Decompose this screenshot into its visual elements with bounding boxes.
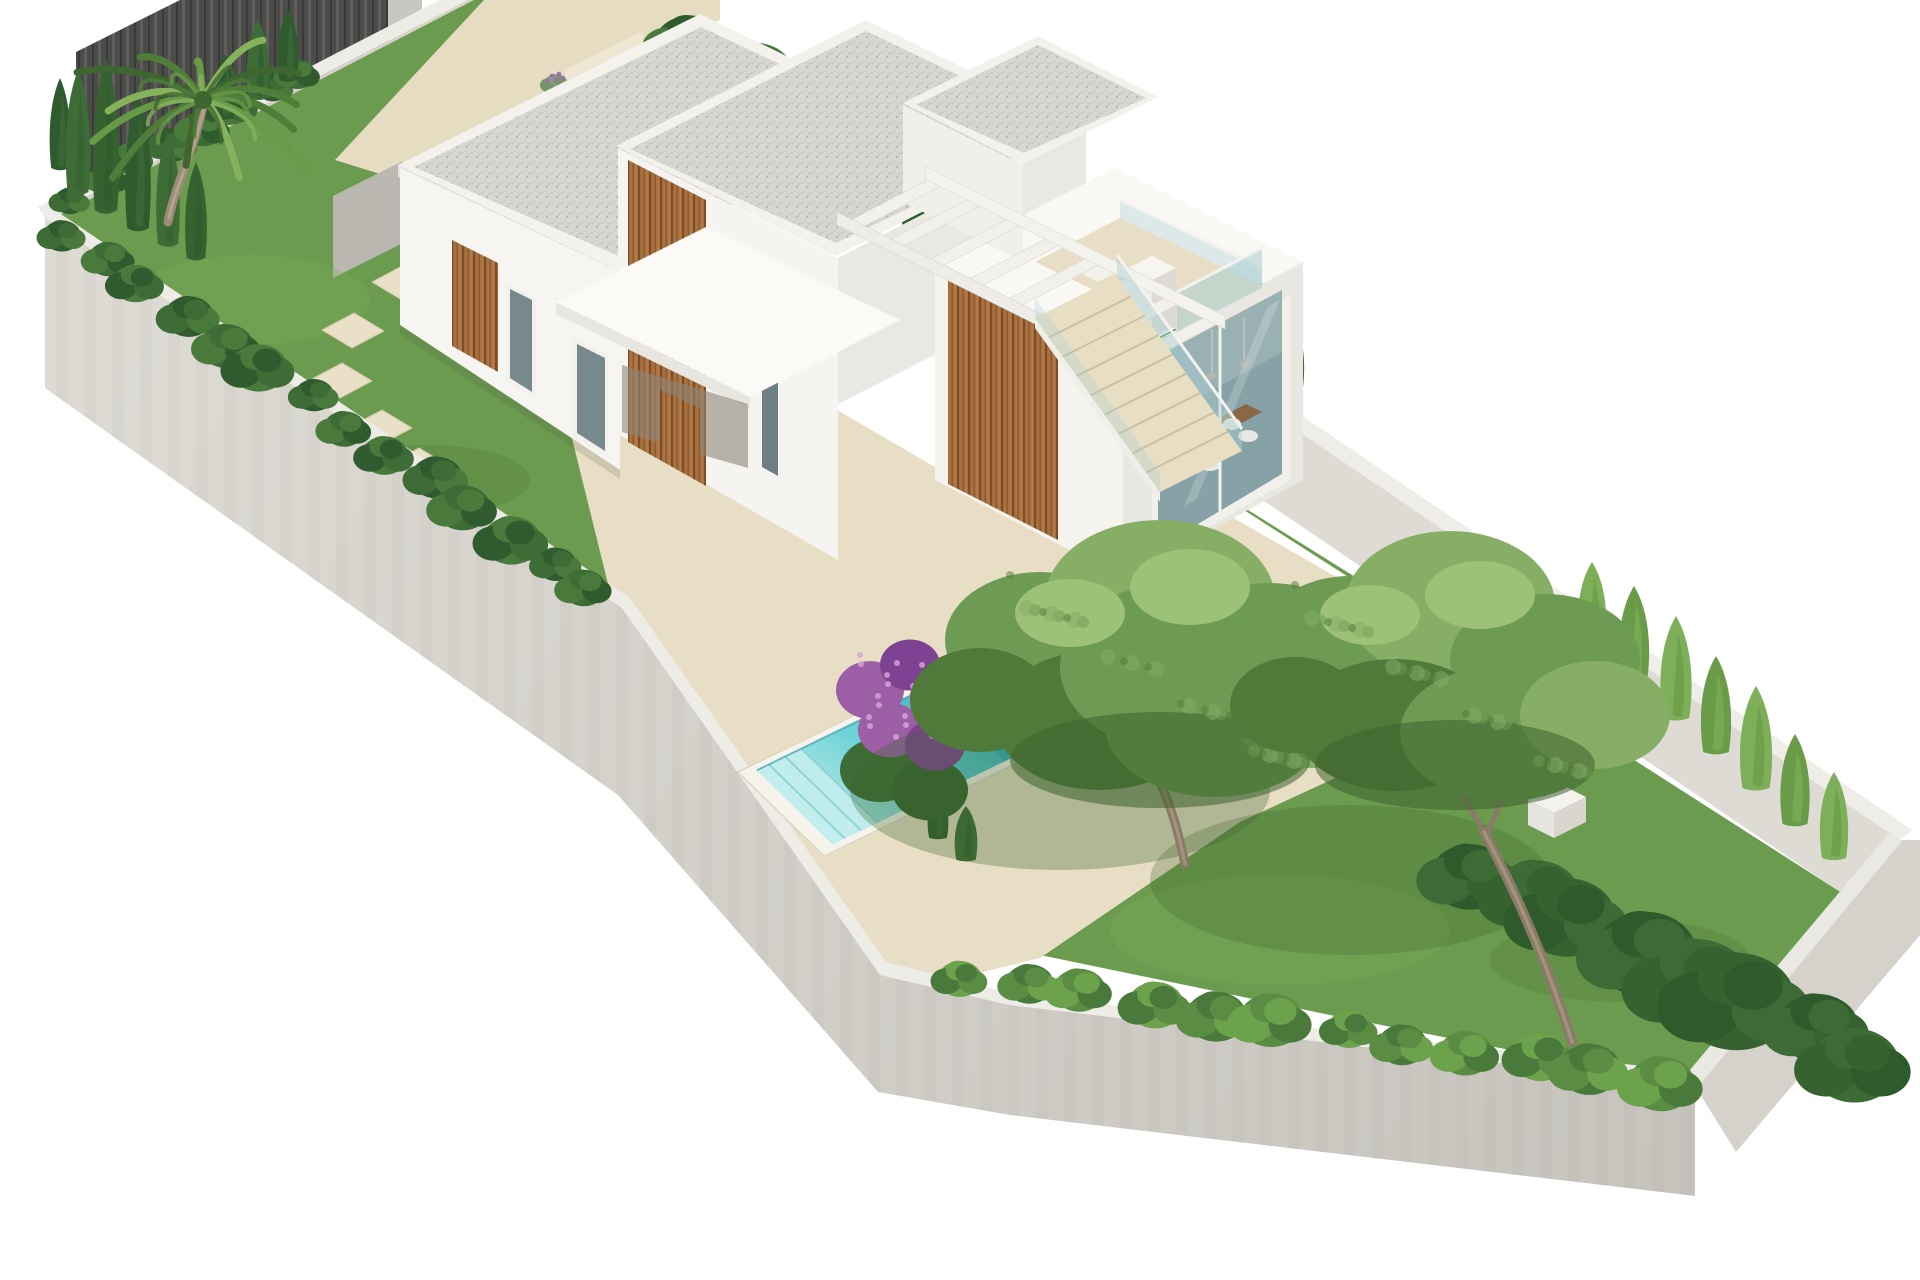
wing-window-2-glass [577, 344, 605, 451]
wing-window-1-glass [510, 289, 532, 392]
villa-isometric-render [0, 0, 1920, 1280]
scene-canvas [0, 0, 1920, 1280]
